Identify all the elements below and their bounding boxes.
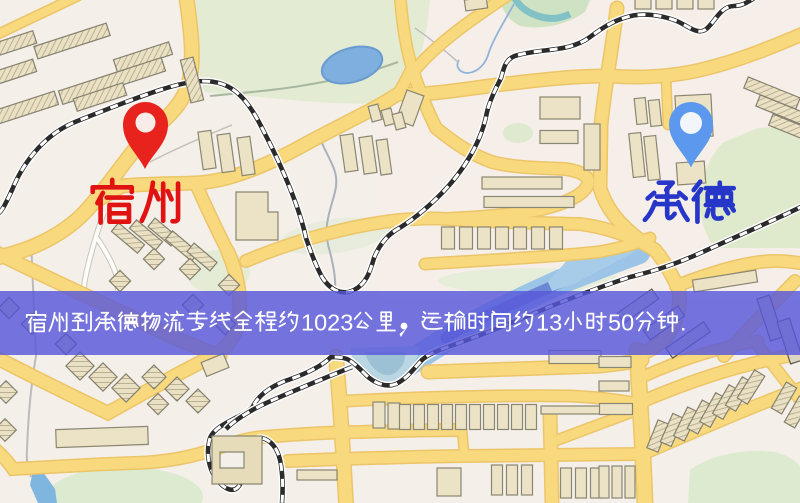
svg-text:.: . bbox=[680, 310, 687, 336]
svg-text:1023: 1023 bbox=[301, 310, 353, 336]
svg-text:13: 13 bbox=[536, 310, 562, 336]
svg-text:50: 50 bbox=[608, 310, 634, 336]
